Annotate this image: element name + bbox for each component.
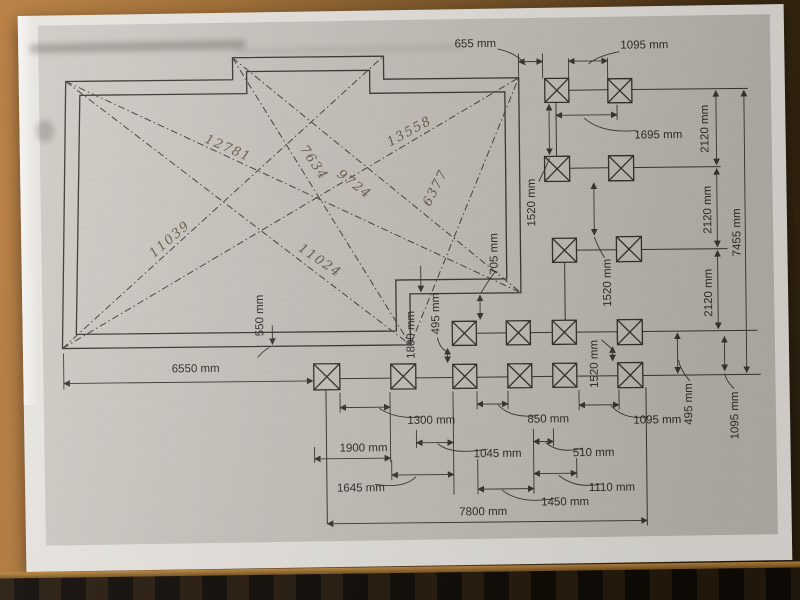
post-marker <box>452 321 476 345</box>
dim-label-1300: 1300 mm <box>407 414 455 427</box>
handwritten-6377: 6377 <box>420 167 451 209</box>
dim-label-495-right: 495 mm <box>683 383 695 425</box>
dim-label-6550: 6550 mm <box>172 363 220 376</box>
post-marker <box>506 321 530 345</box>
dim-label-7455: 7455 mm <box>731 208 744 256</box>
post-marker <box>508 364 532 388</box>
foundation-plan-svg: 655 mm 1095 mm 1695 mm 2120 mm 2120 mm 2… <box>0 0 800 600</box>
post-marker <box>608 79 632 103</box>
dim-label-495-mid: 495 mm <box>430 293 442 335</box>
handwritten-9724: 9724 <box>334 167 374 203</box>
dim-label-1095-bottom: 1095 mm <box>633 414 681 427</box>
handwritten-7634: 7634 <box>296 143 331 184</box>
post-marker <box>617 319 642 344</box>
post-marker <box>616 236 641 261</box>
dim-label-2120-a: 2120 mm <box>699 105 712 153</box>
dim-label-655-top: 655 mm <box>454 38 496 50</box>
post-marker <box>545 156 570 181</box>
dim-label-1520-b: 1520 mm <box>602 259 615 307</box>
post-marker <box>609 156 634 181</box>
dim-label-7800: 7800 mm <box>459 506 507 519</box>
drawing-layer: 655 mm 1095 mm 1695 mm 2120 mm 2120 mm 2… <box>0 0 800 600</box>
dim-label-2120-b: 2120 mm <box>702 186 715 234</box>
dim-label-510: 510 mm <box>573 447 615 459</box>
dim-label-1095-top: 1095 mm <box>620 39 668 52</box>
building-outline <box>59 55 521 349</box>
post-marker <box>553 363 577 387</box>
dim-label-1110: 1110 mm <box>589 482 635 494</box>
dim-label-1045: 1045 mm <box>474 448 522 461</box>
post-marker <box>552 238 576 262</box>
handwritten-12781: 12781 <box>202 132 253 165</box>
dim-label-1695: 1695 mm <box>634 129 682 142</box>
post-marker <box>552 320 576 344</box>
post-marker <box>453 364 477 388</box>
post-marker <box>314 364 340 390</box>
handwritten-11039: 11039 <box>147 218 194 261</box>
dim-label-1800: 1800 mm <box>405 311 418 359</box>
dim-label-1095-right: 1095 mm <box>729 391 742 439</box>
post-marker <box>391 364 416 389</box>
dim-label-850: 850 mm <box>527 413 569 425</box>
photo-of-technical-drawing: 655 mm 1095 mm 1695 mm 2120 mm 2120 mm 2… <box>0 0 800 600</box>
dim-label-550: 550 mm <box>254 295 266 337</box>
dim-label-705: 705 mm <box>488 233 500 275</box>
dim-label-1520-a: 1520 mm <box>526 179 539 227</box>
dim-label-1645: 1645 mm <box>337 482 385 495</box>
dimension-labels: 655 mm 1095 mm 1695 mm 2120 mm 2120 mm 2… <box>168 35 746 521</box>
dim-label-1900: 1900 mm <box>340 442 388 455</box>
post-marker <box>618 362 643 387</box>
dim-label-1520-c: 1520 mm <box>588 340 601 388</box>
diagonal-measure-lines <box>59 55 521 349</box>
handwritten-measurements: 12781 7634 13558 9724 6377 11039 11024 <box>145 113 452 283</box>
post-marker <box>545 78 569 102</box>
dim-label-1450: 1450 mm <box>541 496 589 509</box>
dim-label-2120-c: 2120 mm <box>703 269 716 317</box>
